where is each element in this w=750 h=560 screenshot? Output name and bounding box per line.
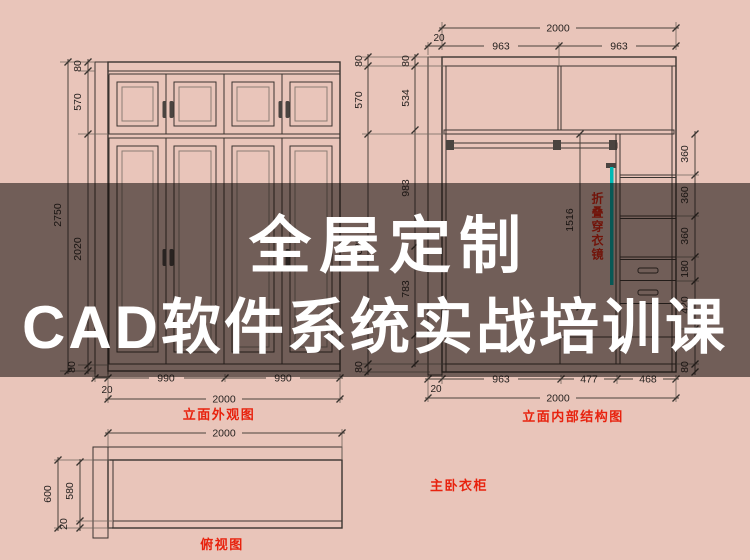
dim-label: 534 xyxy=(400,89,412,107)
top-shelf xyxy=(444,130,674,134)
overlay-title-line2: CAD软件系统实战培训课 xyxy=(0,279,750,366)
overlay-title-line1: 全屋定制 xyxy=(0,195,750,285)
wall-section-hatch xyxy=(93,447,108,538)
dim-label: 80 xyxy=(72,60,84,72)
door-hinge xyxy=(170,101,174,118)
dim-label: 2000 xyxy=(212,394,236,406)
dim-label: 360 xyxy=(679,145,691,163)
top-view-title: 俯视图 xyxy=(200,537,244,552)
dim-label: 570 xyxy=(72,93,84,111)
dim-label: 2000 xyxy=(546,393,570,405)
dim-label: 570 xyxy=(353,91,365,109)
dim-label: 963 xyxy=(492,41,510,53)
dim-label: 2000 xyxy=(546,23,570,35)
rod-bracket xyxy=(553,140,561,150)
top-view: 2000 600 580 20 俯视图 xyxy=(42,428,346,553)
door-hinge xyxy=(279,101,283,118)
rod-bracket xyxy=(446,140,454,150)
front-view-title: 立面外观图 xyxy=(183,407,256,422)
dim-label: 20 xyxy=(430,384,442,395)
upper-divider xyxy=(558,66,561,130)
dim-label: 20 xyxy=(58,518,70,530)
door-hinge xyxy=(286,101,290,118)
dim-label: 20 xyxy=(433,33,445,44)
hanging-rod xyxy=(447,143,617,148)
cornice xyxy=(108,62,340,71)
drawing-caption: 主卧衣柜 xyxy=(430,478,488,493)
cabinet-plan-outline xyxy=(108,460,342,528)
door-hinge xyxy=(163,101,167,118)
dim-label: 20 xyxy=(101,385,113,396)
internal-view-title: 立面内部结构图 xyxy=(522,409,624,424)
top-view-dimensions: 2000 600 580 20 xyxy=(42,428,346,532)
dim-label: 580 xyxy=(64,482,76,500)
dim-label: 80 xyxy=(353,55,365,67)
poster-canvas: 2750 80 570 2020 80 20 990 990 2000 立面外观… xyxy=(0,0,750,560)
dim-label: 80 xyxy=(400,55,412,67)
dim-label: 963 xyxy=(610,41,628,53)
upper-doors xyxy=(109,74,340,134)
mid-rail xyxy=(108,134,340,138)
dim-label: 2000 xyxy=(212,428,236,440)
dim-label: 600 xyxy=(42,485,54,503)
wall-section-hatch xyxy=(93,447,342,460)
